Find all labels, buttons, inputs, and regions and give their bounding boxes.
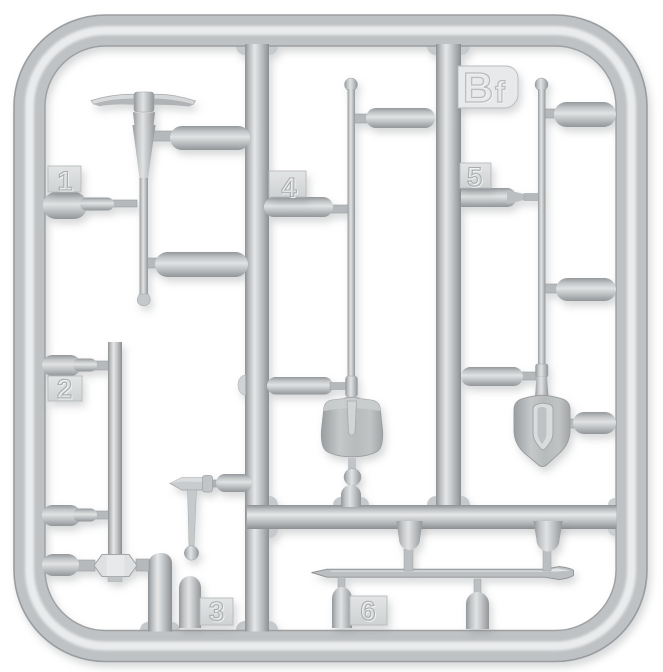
svg-text:3: 3 xyxy=(209,597,224,627)
svg-text:1: 1 xyxy=(57,166,72,196)
svg-text:5: 5 xyxy=(467,162,482,192)
svg-text:4: 4 xyxy=(281,173,296,203)
svg-text:6: 6 xyxy=(360,596,375,626)
svg-text:B: B xyxy=(463,64,493,111)
svg-text:2: 2 xyxy=(57,374,72,404)
svg-text:f: f xyxy=(495,76,506,109)
